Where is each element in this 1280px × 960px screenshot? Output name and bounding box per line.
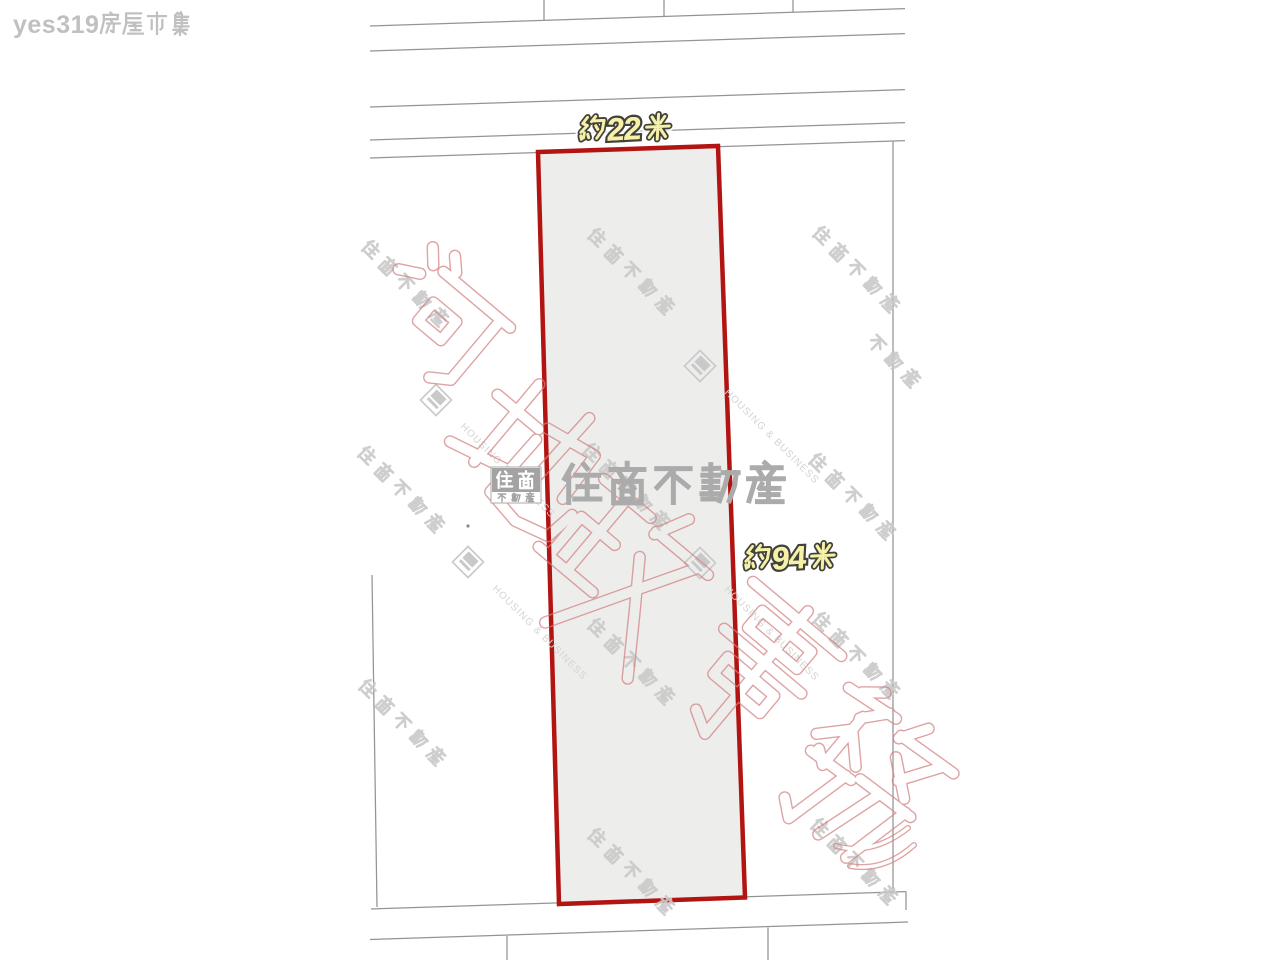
svg-text:94: 94 [771,539,808,577]
svg-text:22: 22 [606,110,642,148]
svg-text:yes319: yes319 [13,11,99,39]
